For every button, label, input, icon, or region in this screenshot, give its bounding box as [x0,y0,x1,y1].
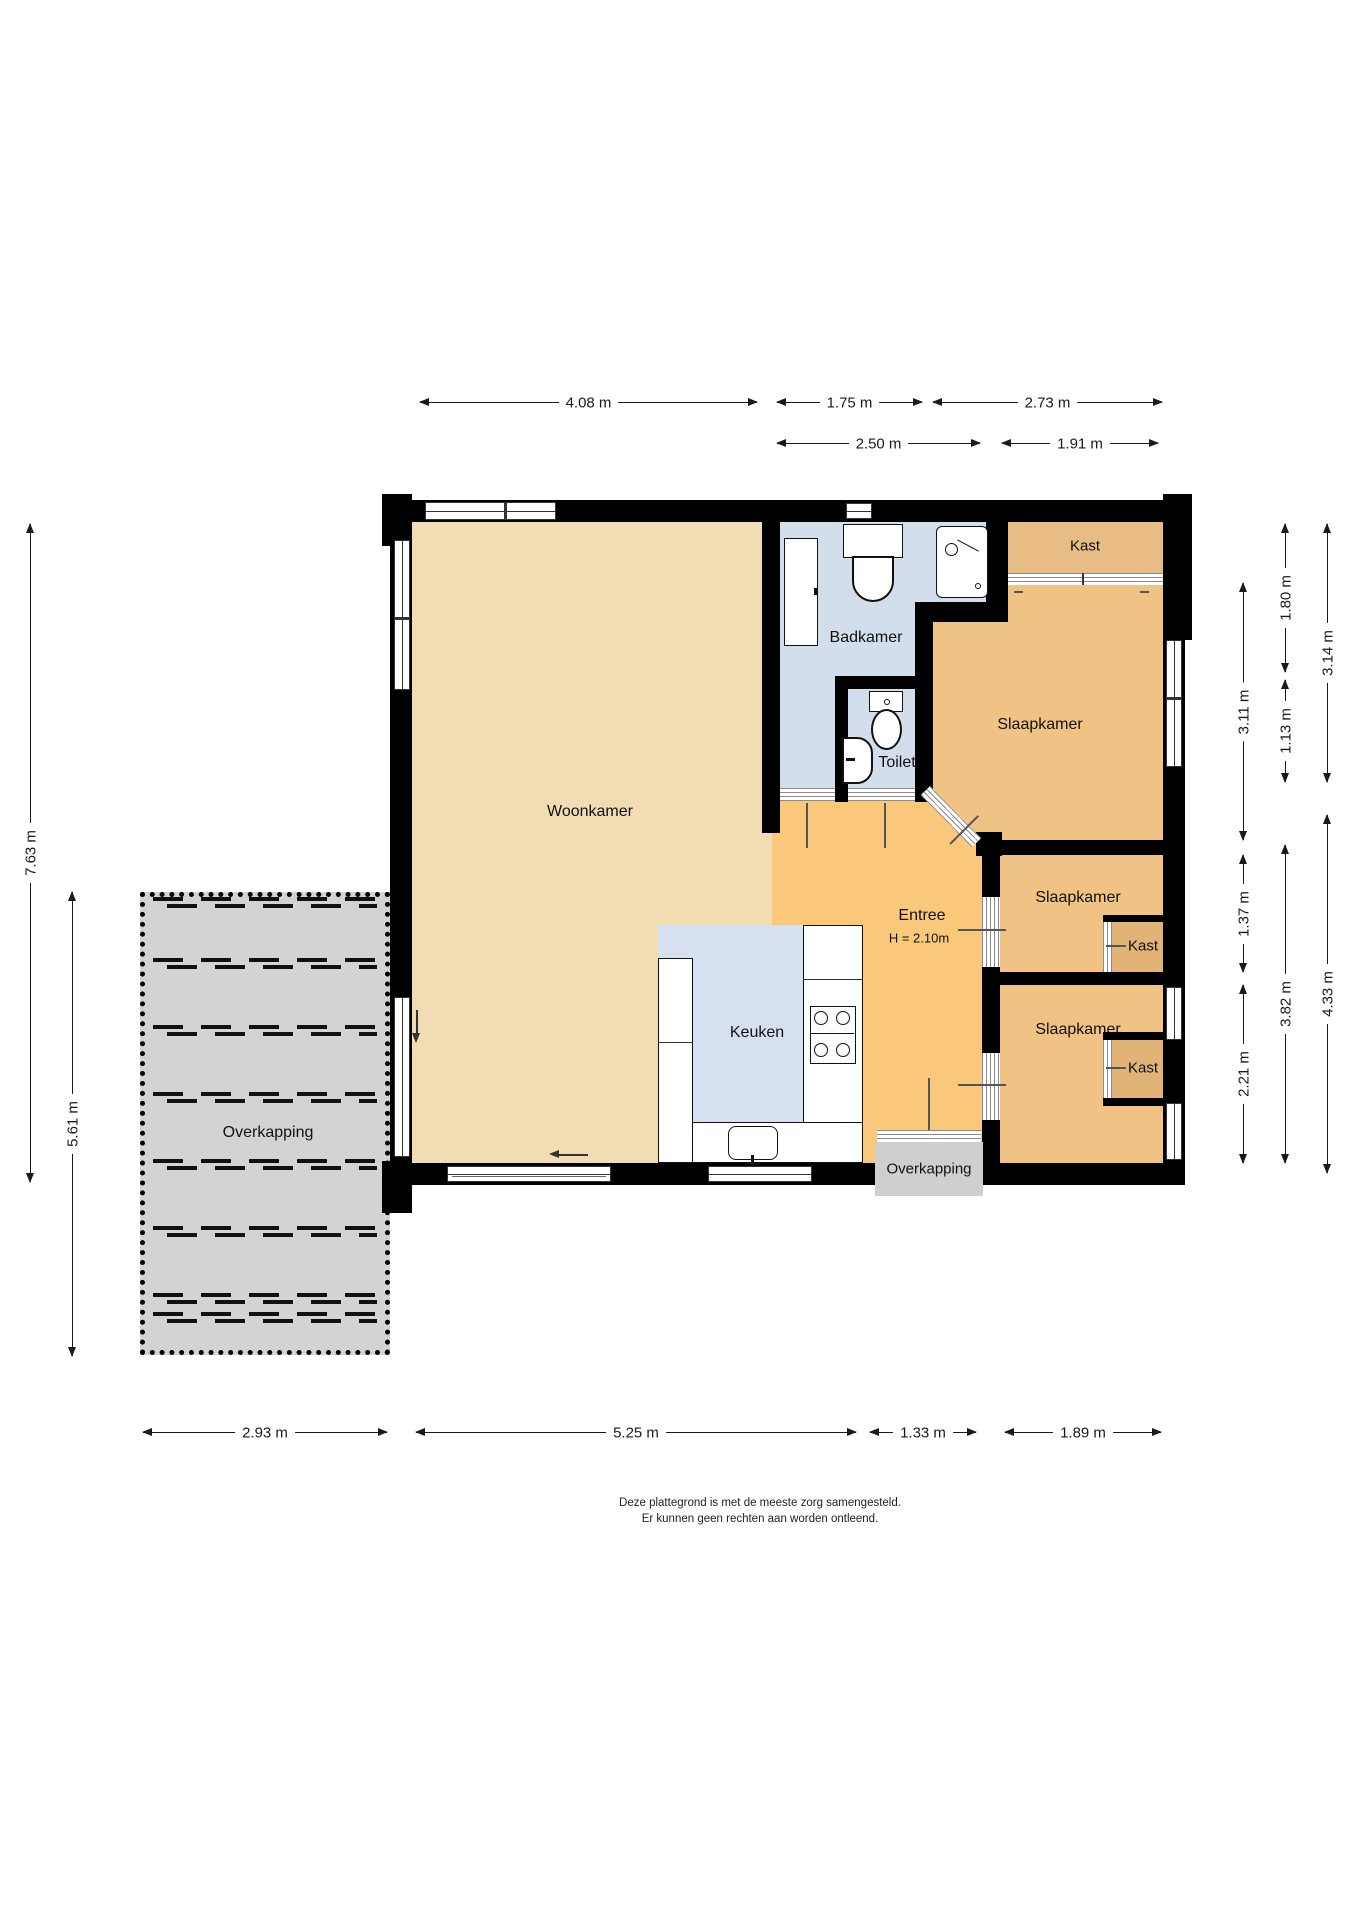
wall-corner-bottom-left [382,1161,412,1213]
roof-beam-row [153,1159,377,1171]
roof-beam-row [153,958,377,970]
dimension-bottom-1-33: 1.33 m [870,1432,976,1433]
burner-icon [814,1011,828,1025]
room-label-overkapping-bottom: Overkapping [884,1161,973,1178]
dimension-top-1-91: 1.91 m [1002,443,1158,444]
room-label-kast-middle: Kast [1126,938,1160,955]
window [1166,987,1182,1040]
room-label-entree: Entree [898,907,945,925]
dimension-label: 3.82 m [1278,974,1295,1034]
cabinet-icon [784,538,818,646]
roof-beam-row [153,1312,377,1324]
door-opening-slaapkamer-middle [982,897,1000,967]
door-opening-kast-middle [1103,922,1112,972]
disclaimer-line-1: Deze plattegrond is met de meeste zorg s… [619,1497,901,1509]
dimension-bottom-2-93: 2.93 m [143,1432,387,1433]
window-mullion [504,502,507,520]
wall-chamfer-post [976,832,1002,856]
burner-icon [836,1011,850,1025]
stove-grid-line [811,1033,854,1034]
dimension-label: 1.89 m [1053,1425,1113,1442]
dimension-right-1-80: 1.80 m [1285,524,1286,672]
shower-arm [957,539,979,551]
roof-beam-row [153,1025,377,1037]
door-swing-line [884,803,886,848]
window-mullion [1166,697,1182,700]
room-label-kast-top: Kast [1070,538,1100,555]
door-divider [1082,573,1084,585]
toilet-button [884,699,890,705]
dimension-bottom-5-25: 5.25 m [416,1432,856,1433]
dimension-label: 1.33 m [893,1425,953,1442]
door-opening-entree-exterior [877,1130,981,1142]
dimension-label: 1.80 m [1278,568,1295,628]
dimension-label: 3.11 m [1236,682,1253,741]
shower-head-icon [945,543,958,556]
slide-arrow-icon [549,1150,559,1158]
dimension-top-2-50: 2.50 m [777,443,980,444]
room-label-entree-height: H = 2.10m [889,931,949,946]
kitchen-tap-base [745,1162,760,1165]
dimension-top-2-73: 2.73 m [933,402,1162,403]
dimension-label: 5.25 m [606,1425,666,1442]
door-opening-kast-bottom [1103,1040,1112,1098]
dimension-right-3-11: 3.11 m [1243,583,1244,840]
room-entree-floor-right [933,801,982,1163]
dimension-right-3-82: 3.82 m [1285,845,1286,1163]
door-opening-slaapkamer-bottom [982,1053,1000,1120]
dimension-right-2-21: 2.21 m [1243,985,1244,1163]
dimension-right-3-14: 3.14 m [1327,524,1328,782]
dimension-left-5-61: 5.61 m [72,892,73,1356]
slide-arrow-line [558,1154,588,1156]
dimension-label: 1.37 m [1236,884,1253,944]
dimension-label: 1.91 m [1050,436,1110,453]
room-label-toilet: Toilet [878,754,915,772]
window [1166,640,1182,767]
sliding-door [447,1166,611,1182]
window [394,540,410,690]
entry-arrow-icon [412,1033,420,1043]
burner-icon [814,1043,828,1057]
roof-beam-row [153,1293,377,1305]
roof-beam-row [153,897,377,909]
dimension-right-4-33: 4.33 m [1327,815,1328,1173]
wall-bottom-right-segment [983,1163,1185,1185]
door-opening-kast-top [1008,573,1163,585]
dimension-label: 2.21 m [1236,1044,1253,1104]
dimension-label: 1.13 m [1278,701,1295,761]
wall-corner-top-right [1163,494,1192,640]
door-opening-toilet [848,788,915,801]
dimension-label: 5.61 m [65,1094,82,1154]
wall-slaapkamer-middle-north [1000,840,1163,855]
sliding-door-rail [452,1176,606,1177]
disclaimer-line-2: Er kunnen geen rechten aan worden ontlee… [642,1513,879,1525]
window [1166,1103,1182,1160]
wall-tick [1014,591,1023,593]
dimension-bottom-1-89: 1.89 m [1005,1432,1161,1433]
window-mullion [394,617,410,620]
burner-icon [836,1043,850,1057]
shower-icon [936,526,988,598]
kitchen-counter-left [658,958,693,1163]
room-label-keuken: Keuken [730,1024,784,1042]
dimension-label: 2.50 m [849,436,909,453]
toilet-bowl-icon [871,709,902,750]
wall-door-post-badkamer [835,786,848,802]
cabinet-handle [814,588,818,595]
dimension-label: 2.73 m [1018,395,1078,412]
counter-divider [658,1042,693,1043]
window [425,502,556,520]
room-label-kast-bottom: Kast [1126,1060,1160,1077]
room-label-woonkamer: Woonkamer [547,803,633,821]
roof-beam-row [153,1092,377,1104]
door-swing-line [958,1084,1006,1086]
dimension-label: 7.63 m [23,823,40,883]
shower-drain [975,583,981,589]
washbasin-bowl-icon [852,556,894,602]
room-label-slaapkamer-bottom: Slaapkamer [1035,1021,1120,1039]
door-swing-line [806,803,808,848]
dimension-top-1-75: 1.75 m [777,402,922,403]
dimension-right-1-37: 1.37 m [1243,855,1244,972]
door-swing-line [958,929,1006,931]
wall-kast-bottom-south [1103,1098,1163,1106]
dimension-right-1-13: 1.13 m [1285,680,1286,782]
dimension-top-4-08: 4.08 m [420,402,757,403]
dimension-label: 4.33 m [1320,964,1337,1024]
stove-icon [810,1006,856,1064]
wall-slaapkamer-divider [1000,972,1163,985]
room-label-overkapping-left: Overkapping [220,1124,317,1142]
toilet-sink-tap [846,758,855,761]
dimension-label: 2.93 m [235,1425,295,1442]
door-opening-badkamer [780,788,835,801]
dimension-left-7-63: 7.63 m [30,524,31,1182]
wall-alcove-south [933,602,1008,622]
counter-divider [803,979,863,980]
wall-slaapkamer-top-west [915,602,933,788]
dimension-label: 3.14 m [1320,623,1337,683]
dimension-label: 1.75 m [820,395,880,412]
floor-plan: Woonkamer Badkamer Toilet Slaapkamer Sla… [0,0,1358,1920]
window [708,1166,812,1182]
washbasin-icon [843,524,903,558]
room-label-slaapkamer-middle: Slaapkamer [1035,889,1120,907]
wall-corner-top-left [382,494,412,546]
window [846,503,872,519]
entry-arrow-line [416,1010,418,1034]
roof-beam-row [153,1226,377,1238]
room-label-badkamer: Badkamer [830,629,903,647]
door-swing-line [928,1078,930,1130]
dimension-label: 4.08 m [559,395,619,412]
wall-kast-middle-north [1103,915,1163,922]
wall-badkamer-west [762,522,780,833]
wall-tick [1140,591,1149,593]
door-left-wall [394,997,410,1157]
room-label-slaapkamer-top: Slaapkamer [997,716,1082,734]
